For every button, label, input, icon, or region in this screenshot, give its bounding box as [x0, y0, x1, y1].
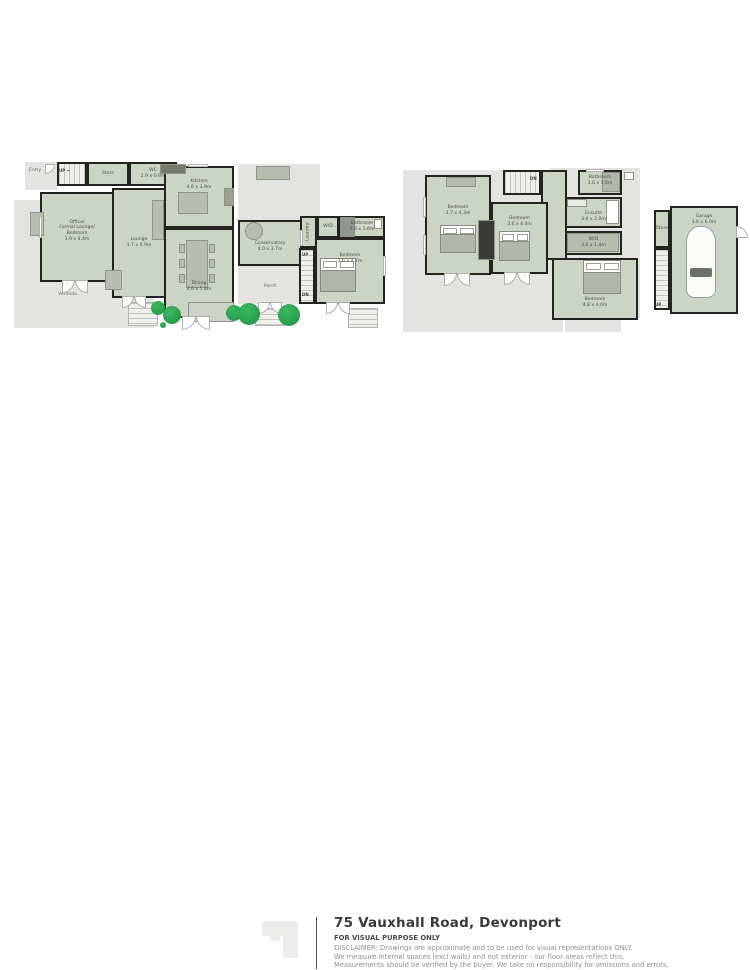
direction-label: UP →: [59, 168, 70, 173]
pillow: [604, 263, 619, 270]
furniture: [567, 233, 619, 252]
pillow: [502, 234, 514, 241]
porch-area: Porch: [238, 266, 302, 304]
bed: [320, 258, 356, 292]
room-label: Lounge3.7 x 4.9m: [127, 237, 152, 248]
area-label: Porch: [264, 284, 277, 289]
door-icon: [736, 226, 748, 238]
furniture: [178, 192, 208, 214]
room-store: Store: [87, 162, 129, 186]
room-office-formal-lounge: Office/Formal Lounge/Bedroom3.9 x 4.4m: [40, 192, 114, 282]
chair: [179, 244, 185, 253]
furniture: [152, 200, 164, 240]
blanket: [584, 272, 620, 293]
furniture: [160, 164, 186, 174]
chair: [209, 259, 215, 268]
disclaimer-line-2: We measure internal spaces (excl walls) …: [334, 953, 624, 961]
room-stair-lobby: [57, 162, 87, 186]
disclaimer-text: DISCLAIMER: Drawings are approximate and…: [334, 944, 744, 970]
first-floor-plan: Bedroom3.7 x 4.3mBedroom3.6 x 4.4mBathro…: [400, 163, 644, 335]
blanket: [441, 234, 475, 252]
furniture: [256, 166, 290, 180]
footer: 75 Vauxhall Road, Devonport FOR VISUAL P…: [0, 455, 750, 530]
room-label: Bedroom3.6 x 4.4m: [507, 216, 532, 227]
area-label: Veranda: [58, 292, 77, 297]
porch-below-bedroom: [565, 320, 621, 332]
direction-label: DN: [302, 292, 309, 297]
window-marker: [423, 197, 426, 217]
chair: [179, 259, 185, 268]
bed: [440, 225, 476, 253]
room-store-garage: Store: [654, 210, 670, 248]
dining-table: [186, 240, 208, 288]
room-label: Bedroom4.8 x 4.0m: [583, 297, 608, 308]
pillow: [586, 263, 601, 270]
furniture-round: [245, 222, 263, 240]
room-label: Garage3.6 x 6.0m: [692, 214, 717, 225]
disclaimer-line-1: DISCLAIMER: Drawings are approximate and…: [334, 944, 633, 952]
room-label: Bedroom3.7 x 4.3m: [446, 205, 471, 216]
blanket: [321, 270, 355, 291]
pillow: [340, 261, 354, 268]
furniture: [374, 219, 382, 229]
disclaimer-line-3: Measurements should be verified by the b…: [334, 961, 669, 969]
room-label: Store: [656, 226, 668, 232]
car-windshield: [690, 268, 711, 278]
footer-divider: [316, 917, 317, 969]
double-door-icon: [182, 316, 196, 330]
purpose-note: FOR VISUAL PURPOSE ONLY: [334, 934, 744, 942]
furniture: [624, 172, 634, 180]
furniture: [224, 188, 234, 206]
room-label: Office/Formal Lounge/Bedroom3.9 x 4.4m: [59, 220, 95, 243]
furniture: [105, 270, 122, 290]
chair: [209, 274, 215, 283]
floorplan-canvas: EntryVerandaPorchStoreWC2.9 x 0.9mOffice…: [0, 0, 750, 530]
direction-label: UP: [655, 302, 661, 307]
chair: [179, 274, 185, 283]
car-icon: [686, 226, 716, 298]
furniture: [340, 217, 355, 237]
furniture: [602, 172, 620, 192]
room-label: Laundry: [306, 223, 312, 242]
furniture: [567, 199, 587, 207]
exterior-steps: [348, 308, 378, 328]
furniture: [478, 220, 495, 260]
pillow: [517, 234, 529, 241]
direction-label: UP: [302, 252, 308, 257]
ground-floor-plan: EntryVerandaPorchStoreWC2.9 x 0.9mOffice…: [12, 156, 394, 340]
chair: [209, 244, 215, 253]
window-marker: [586, 169, 604, 172]
brand-logo-icon: [256, 916, 302, 962]
garage-plan: Garage3.6 x 6.0mStoreUP: [650, 200, 742, 324]
address-title: 75 Vauxhall Road, Devonport: [334, 915, 744, 931]
double-door-icon: [338, 302, 350, 314]
bed: [499, 231, 530, 261]
double-door-icon: [326, 302, 338, 314]
furniture: [446, 177, 476, 187]
window-marker: [423, 235, 426, 255]
room-label: Ensuite3.6 x 2.0m: [581, 211, 606, 222]
double-door-icon: [196, 316, 210, 330]
room-label: Store: [102, 171, 114, 177]
room-label: W/D: [323, 224, 333, 230]
tree-icon: [160, 322, 166, 328]
bed: [583, 260, 621, 294]
area-label: Entry: [29, 168, 41, 173]
window-marker: [300, 230, 303, 246]
tree-icon: [163, 306, 181, 324]
room-label: Conservatory4.0 x 3.7m: [255, 241, 286, 252]
room-label: Kitchen4.6 x 3.9m: [187, 179, 212, 190]
tree-icon: [238, 303, 260, 325]
window-marker: [383, 256, 386, 276]
pillow: [323, 261, 337, 268]
room-stairs-garage: [654, 248, 670, 310]
furniture: [606, 200, 619, 224]
footer-text-block: 75 Vauxhall Road, Devonport FOR VISUAL P…: [334, 915, 744, 970]
window-marker: [188, 164, 208, 167]
room-stairs-top: [503, 170, 541, 195]
direction-label: DN: [530, 176, 537, 181]
tree-icon: [278, 304, 300, 326]
window-marker: [39, 216, 42, 238]
blanket: [500, 241, 529, 260]
room-wd: W/D: [317, 216, 339, 238]
